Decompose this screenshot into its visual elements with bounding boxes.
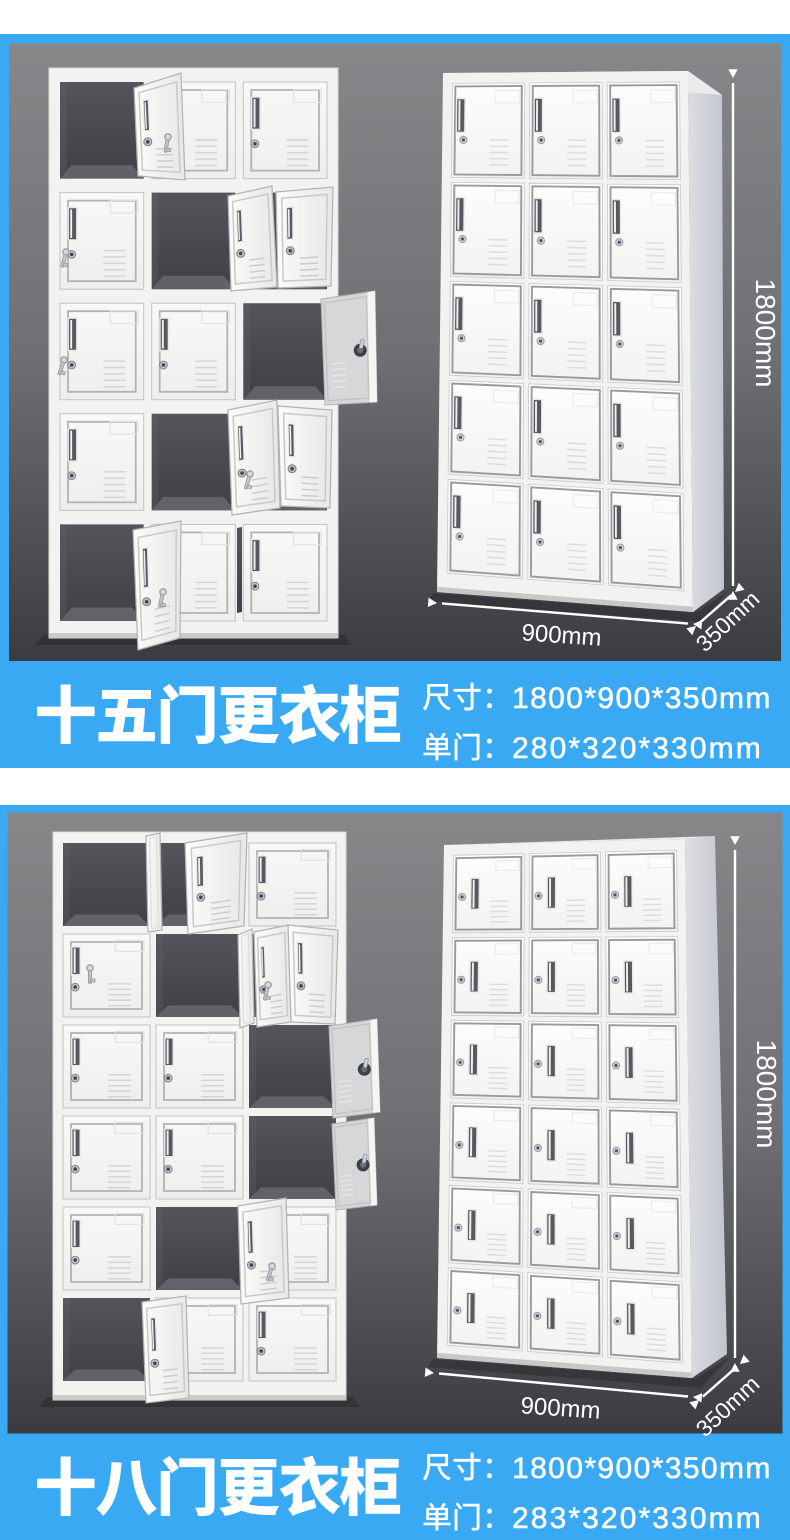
svg-text:1800*900*350mm: 1800*900*350mm	[512, 1452, 772, 1485]
svg-text:900mm: 900mm	[521, 619, 603, 652]
svg-text:283*320*330mm: 283*320*330mm	[512, 1502, 763, 1535]
svg-text:1800mm: 1800mm	[751, 1040, 782, 1149]
svg-text:900mm: 900mm	[520, 1392, 602, 1425]
svg-text:280*320*330mm: 280*320*330mm	[512, 732, 763, 765]
svg-text:1800*900*350mm: 1800*900*350mm	[512, 682, 772, 715]
svg-text:1800mm: 1800mm	[750, 279, 781, 388]
